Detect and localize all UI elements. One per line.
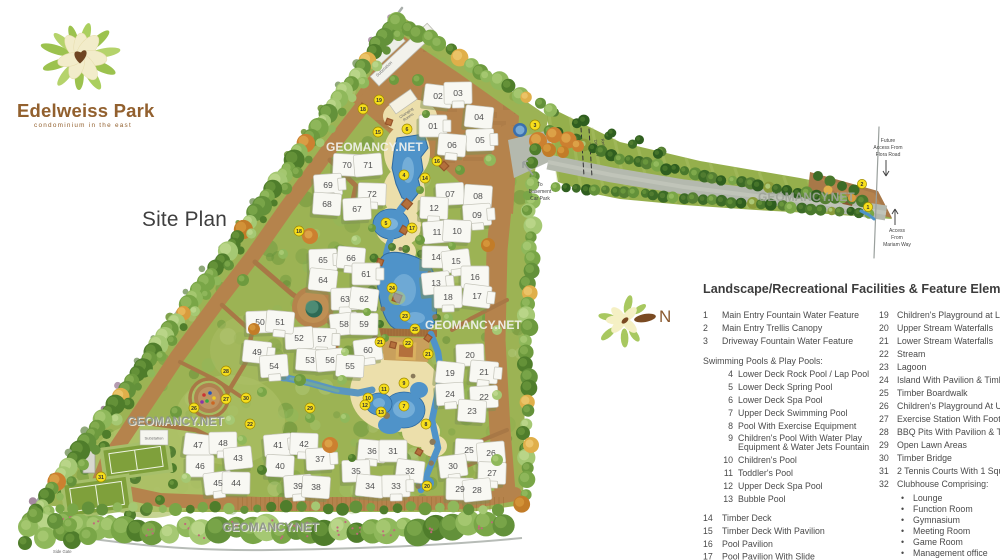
svg-text:16: 16 (434, 159, 440, 165)
svg-text:Flora Road: Flora Road (876, 152, 901, 158)
svg-text:30: 30 (879, 453, 889, 463)
svg-text:08: 08 (473, 191, 483, 201)
svg-text:59: 59 (359, 319, 369, 329)
svg-text:32: 32 (405, 466, 415, 476)
svg-text:Clubhouse Comprising:: Clubhouse Comprising: (897, 479, 988, 489)
svg-text:Lower Deck Spa Pool: Lower Deck Spa Pool (738, 395, 823, 405)
svg-text:17: 17 (472, 291, 482, 301)
svg-text:N: N (659, 307, 671, 326)
svg-text:Meeting Room: Meeting Room (913, 526, 970, 536)
svg-text:06: 06 (447, 140, 457, 150)
svg-text:57: 57 (317, 334, 327, 344)
svg-text:11: 11 (433, 227, 442, 237)
svg-text:16: 16 (470, 272, 480, 282)
svg-text:Site Plan: Site Plan (142, 208, 227, 231)
svg-text:28: 28 (879, 427, 889, 437)
svg-text:41: 41 (273, 440, 283, 450)
svg-text:Driveway Fountain Water Featur: Driveway Fountain Water Feature (722, 336, 853, 346)
svg-text:GEOMANCY.NET: GEOMANCY.NET (222, 520, 319, 534)
svg-text:22: 22 (247, 422, 253, 428)
svg-text:3: 3 (703, 336, 708, 346)
svg-text:13: 13 (723, 494, 733, 504)
svg-text:12: 12 (362, 403, 368, 409)
svg-text:23: 23 (467, 406, 477, 416)
svg-text:Edelweiss Park: Edelweiss Park (17, 100, 155, 121)
svg-text:Timber Bridge: Timber Bridge (897, 453, 952, 463)
svg-text:32: 32 (879, 479, 889, 489)
svg-text:Lower Deck Spring Pool: Lower Deck Spring Pool (738, 382, 832, 392)
svg-text:GEOMANCY.NET: GEOMANCY.NET (127, 414, 224, 428)
svg-text:20: 20 (465, 350, 475, 360)
svg-text:2: 2 (861, 182, 864, 188)
svg-text:GEOMANCY.NET: GEOMANCY.NET (326, 140, 423, 154)
svg-text:BBQ Pits With Pavilion & Trell: BBQ Pits With Pavilion & Trellis (897, 427, 1000, 437)
svg-text:23: 23 (879, 362, 889, 372)
svg-text:5: 5 (385, 221, 388, 227)
svg-text:Lower Stream Waterfalls: Lower Stream Waterfalls (897, 336, 994, 346)
svg-text:To: To (537, 182, 543, 188)
svg-text:21: 21 (879, 336, 889, 346)
svg-text:Access From: Access From (873, 145, 902, 151)
svg-text:72: 72 (367, 189, 377, 199)
svg-text:01: 01 (428, 121, 438, 131)
svg-text:38: 38 (311, 482, 321, 492)
svg-text:12: 12 (723, 481, 733, 491)
svg-text:9: 9 (728, 433, 733, 443)
svg-text:43: 43 (233, 453, 243, 463)
svg-text:18: 18 (296, 229, 302, 235)
svg-text:61: 61 (361, 269, 371, 279)
svg-text:Timber Deck With Pavilion: Timber Deck With Pavilion (722, 526, 825, 536)
svg-text:Upper Deck Swimming Pool: Upper Deck Swimming Pool (738, 408, 848, 418)
svg-text:•: • (901, 504, 904, 514)
svg-text:30: 30 (448, 461, 458, 471)
svg-text:7: 7 (403, 404, 406, 410)
svg-text:•: • (901, 493, 904, 503)
svg-text:7: 7 (728, 408, 733, 418)
svg-text:Island With Pavilion & Timber: Island With Pavilion & Timber Deck (897, 375, 1000, 385)
svg-text:27: 27 (487, 468, 497, 478)
svg-text:07: 07 (445, 189, 455, 199)
svg-text:Lounge: Lounge (913, 493, 942, 503)
svg-text:Upper Deck Spa Pool: Upper Deck Spa Pool (738, 481, 823, 491)
svg-text:Equipment & Water Jets Fountai: Equipment & Water Jets Fountain (738, 442, 869, 452)
svg-text:21: 21 (425, 352, 431, 358)
svg-text:63: 63 (340, 294, 350, 304)
svg-text:Lagoon: Lagoon (897, 362, 926, 372)
svg-text:14: 14 (703, 513, 713, 523)
svg-text:Game Room: Game Room (913, 537, 963, 547)
svg-text:12: 12 (429, 203, 439, 213)
svg-text:02: 02 (433, 91, 443, 101)
svg-text:Stream: Stream (897, 349, 925, 359)
svg-text:15: 15 (375, 130, 381, 136)
svg-text:11: 11 (724, 468, 733, 478)
svg-text:28: 28 (472, 485, 482, 495)
svg-text:Basement: Basement (529, 189, 552, 195)
svg-text:69: 69 (323, 180, 333, 190)
svg-text:17: 17 (703, 552, 713, 560)
svg-text:52: 52 (294, 333, 304, 343)
svg-text:25: 25 (412, 327, 418, 333)
svg-text:6: 6 (728, 395, 733, 405)
svg-text:15: 15 (451, 256, 461, 266)
svg-text:Timber Deck: Timber Deck (722, 513, 772, 523)
svg-text:46: 46 (195, 461, 205, 471)
svg-text:22: 22 (405, 341, 411, 347)
svg-text:10: 10 (452, 226, 462, 236)
svg-text:•: • (901, 537, 904, 547)
svg-text:19: 19 (445, 368, 455, 378)
svg-text:66: 66 (346, 253, 356, 263)
svg-text:05: 05 (475, 135, 485, 145)
svg-text:Substation: Substation (145, 436, 164, 441)
svg-text:22: 22 (479, 392, 489, 402)
svg-text:25: 25 (879, 388, 889, 398)
svg-text:62: 62 (359, 294, 369, 304)
svg-text:45: 45 (213, 478, 223, 488)
svg-text:47: 47 (193, 440, 203, 450)
svg-text:Toddler's Pool: Toddler's Pool (738, 468, 793, 478)
svg-text:13: 13 (378, 410, 384, 416)
svg-text:23: 23 (402, 314, 408, 320)
svg-text:Exercise Station With Foot Ref: Exercise Station With Foot Reflexology (897, 414, 1000, 424)
svg-text:•: • (901, 515, 904, 525)
svg-text:39: 39 (293, 481, 303, 491)
svg-text:8: 8 (728, 421, 733, 431)
svg-text:Pool Pavilion: Pool Pavilion (722, 539, 773, 549)
svg-text:17: 17 (409, 226, 415, 232)
svg-text:29: 29 (879, 440, 889, 450)
svg-text:Mariam Way: Mariam Way (883, 242, 911, 248)
svg-text:16: 16 (703, 539, 713, 549)
svg-text:4: 4 (728, 369, 733, 379)
svg-text:Swimming Pools & Play Pools:: Swimming Pools & Play Pools: (703, 356, 823, 366)
svg-text:Main Entry Trellis Canopy: Main Entry Trellis Canopy (722, 323, 823, 333)
svg-text:14: 14 (422, 176, 428, 182)
svg-text:Future: Future (881, 138, 896, 144)
svg-text:Children's Playground At Upper: Children's Playground At Upper Deck (897, 401, 1000, 411)
svg-text:25: 25 (464, 445, 474, 455)
svg-text:58: 58 (339, 319, 349, 329)
svg-text:Pool Pavilion With Slide: Pool Pavilion With Slide (722, 552, 815, 560)
svg-text:GEOMANCY.NET: GEOMANCY.NET (758, 190, 855, 204)
svg-text:19: 19 (376, 98, 382, 104)
svg-text:34: 34 (365, 481, 375, 491)
svg-text:Open Lawn Areas: Open Lawn Areas (897, 440, 968, 450)
svg-text:10: 10 (723, 455, 733, 465)
svg-text:8: 8 (425, 422, 428, 428)
svg-text:condominium in the east: condominium in the east (34, 122, 132, 129)
svg-text:Management office: Management office (913, 548, 988, 558)
svg-text:Function Room: Function Room (913, 504, 973, 514)
svg-text:28: 28 (223, 369, 229, 375)
svg-text:21: 21 (479, 367, 489, 377)
svg-text:49: 49 (252, 347, 262, 357)
svg-text:14: 14 (431, 252, 441, 262)
svg-text:44: 44 (231, 478, 241, 488)
svg-text:26: 26 (879, 401, 889, 411)
svg-text:24: 24 (445, 389, 455, 399)
svg-text:30: 30 (243, 396, 249, 402)
svg-text:15: 15 (703, 526, 713, 536)
svg-text:35: 35 (351, 466, 361, 476)
svg-text:64: 64 (318, 275, 328, 285)
svg-text:GEOMANCY.NET: GEOMANCY.NET (425, 318, 522, 332)
svg-text:Children's Playground at Lower: Children's Playground at Lower Deck (897, 310, 1000, 320)
svg-text:09: 09 (472, 210, 482, 220)
svg-text:20: 20 (424, 484, 430, 490)
svg-text:18: 18 (360, 107, 366, 113)
svg-text:Pool With Exercise Equipment: Pool With Exercise Equipment (738, 421, 857, 431)
svg-text:Gymnasium: Gymnasium (913, 515, 960, 525)
svg-text:33: 33 (391, 481, 401, 491)
svg-text:27: 27 (223, 397, 229, 403)
svg-text:24: 24 (879, 375, 889, 385)
svg-text:•: • (901, 548, 904, 558)
svg-text:13: 13 (431, 278, 441, 288)
svg-text:37: 37 (315, 454, 325, 464)
svg-text:2 Tennis Courts With 1 Squash: 2 Tennis Courts With 1 Squash Court (897, 466, 1000, 476)
svg-text:56: 56 (325, 355, 335, 365)
svg-text:Main Entry Fountain Water Feat: Main Entry Fountain Water Feature (722, 310, 859, 320)
svg-text:2: 2 (703, 323, 708, 333)
svg-text:Lower Deck Rock Pool / Lap Poo: Lower Deck Rock Pool / Lap Pool (738, 369, 869, 379)
svg-text:•: • (901, 526, 904, 536)
svg-text:Children's Pool: Children's Pool (738, 455, 797, 465)
svg-text:65: 65 (318, 255, 328, 265)
svg-text:67: 67 (352, 204, 362, 214)
svg-text:27: 27 (879, 414, 889, 424)
svg-text:From: From (891, 235, 903, 241)
svg-text:54: 54 (269, 361, 279, 371)
svg-text:5: 5 (728, 382, 733, 392)
svg-text:70: 70 (342, 160, 352, 170)
svg-text:20: 20 (879, 323, 889, 333)
svg-text:Bubble Pool: Bubble Pool (738, 494, 785, 504)
svg-text:31: 31 (388, 446, 398, 456)
svg-text:31: 31 (98, 475, 104, 481)
svg-text:71: 71 (363, 160, 373, 170)
svg-text:60: 60 (363, 345, 373, 355)
svg-text:6: 6 (406, 127, 409, 133)
svg-text:Landscape/Recreational Facilit: Landscape/Recreational Facilities & Feat… (703, 282, 1000, 296)
svg-text:68: 68 (322, 199, 332, 209)
svg-text:26: 26 (191, 406, 197, 412)
svg-text:24: 24 (389, 286, 395, 292)
svg-text:Car Park: Car Park (530, 196, 550, 202)
svg-text:18: 18 (443, 292, 453, 302)
svg-text:04: 04 (474, 112, 484, 122)
svg-text:51: 51 (275, 317, 285, 327)
svg-text:4: 4 (403, 173, 406, 179)
svg-text:22: 22 (879, 349, 889, 359)
svg-text:42: 42 (299, 439, 309, 449)
svg-text:1: 1 (867, 205, 870, 211)
svg-text:Access: Access (889, 228, 906, 234)
svg-text:40: 40 (275, 461, 285, 471)
svg-text:55: 55 (345, 361, 355, 371)
svg-text:11: 11 (381, 387, 387, 393)
svg-text:36: 36 (367, 446, 377, 456)
svg-text:3: 3 (534, 123, 537, 129)
svg-text:Timber Boardwalk: Timber Boardwalk (897, 388, 968, 398)
svg-text:19: 19 (879, 310, 889, 320)
svg-text:48: 48 (218, 438, 228, 448)
svg-text:21: 21 (377, 340, 383, 346)
svg-text:9: 9 (403, 381, 406, 387)
svg-text:Upper Stream Waterfalls: Upper Stream Waterfalls (897, 323, 994, 333)
svg-text:53: 53 (305, 355, 315, 365)
svg-text:31: 31 (879, 466, 889, 476)
svg-text:03: 03 (453, 88, 463, 98)
svg-text:1: 1 (703, 310, 708, 320)
svg-text:29: 29 (455, 484, 465, 494)
svg-text:29: 29 (307, 406, 313, 412)
svg-text:Side Gate: Side Gate (53, 549, 72, 554)
